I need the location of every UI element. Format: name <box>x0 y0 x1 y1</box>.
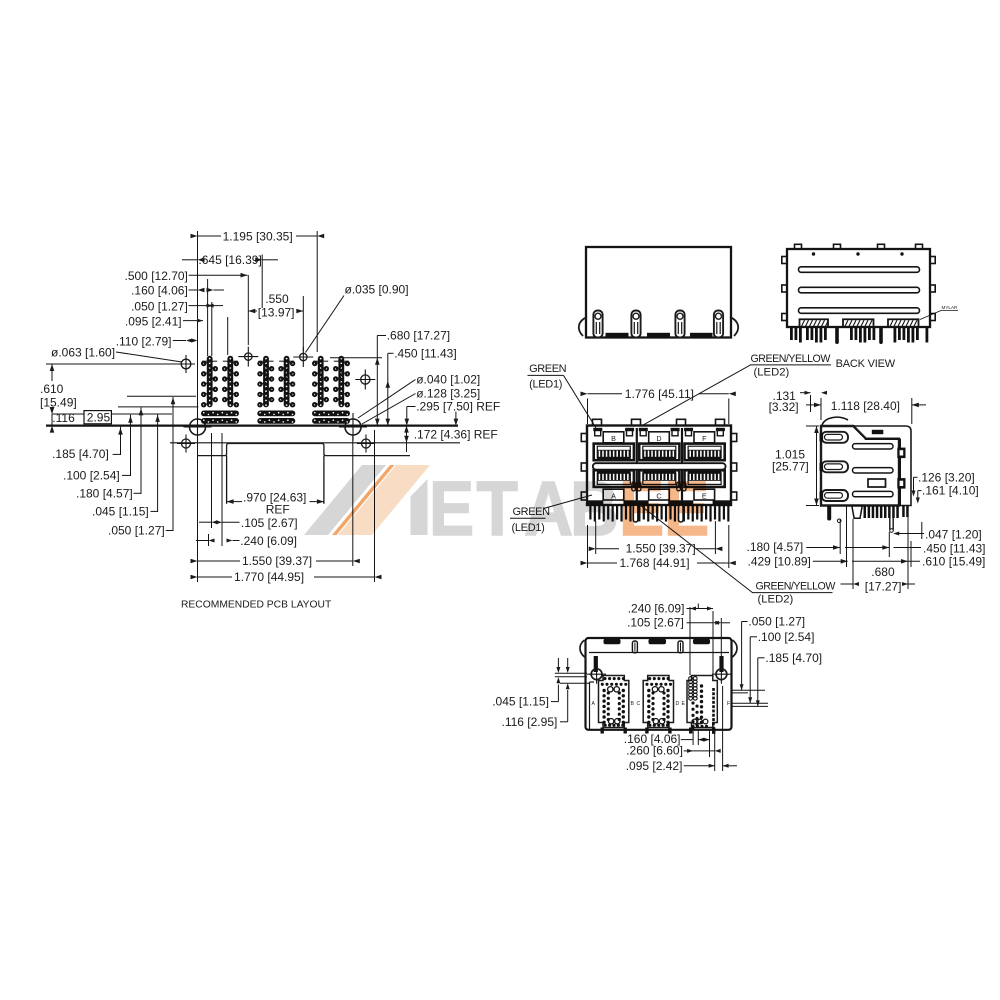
svg-text:.680 [17.27]: .680 [17.27] <box>387 328 450 342</box>
svg-text:.610 [15.49]: .610 [15.49] <box>922 555 985 569</box>
svg-text:E: E <box>429 466 474 552</box>
svg-text:[13.97]: [13.97] <box>258 305 295 319</box>
svg-text:.047 [1.20]: .047 [1.20] <box>925 527 982 541</box>
svg-text:MYLAR: MYLAR <box>942 305 959 310</box>
svg-text:.680: .680 <box>871 565 895 579</box>
svg-text:BACK VIEW: BACK VIEW <box>836 358 896 370</box>
svg-text:F: F <box>702 434 707 443</box>
svg-text:1.770 [44.95]: 1.770 [44.95] <box>234 570 304 584</box>
svg-text:D: D <box>676 701 680 707</box>
svg-text:1.195 [30.35]: 1.195 [30.35] <box>223 230 293 244</box>
svg-text:.500 [12.70]: .500 [12.70] <box>125 269 188 283</box>
svg-text:E: E <box>682 701 686 707</box>
svg-text:1.776 [45.11]: 1.776 [45.11] <box>625 387 694 401</box>
svg-text:.161 [4.10]: .161 [4.10] <box>922 484 979 498</box>
svg-text:.110 [2.79]: .110 [2.79] <box>116 335 172 349</box>
svg-text:.160 [4.06]: .160 [4.06] <box>131 284 188 298</box>
svg-text:.240 [6.09]: .240 [6.09] <box>628 601 685 615</box>
svg-text:GREEN/YELLOW: GREEN/YELLOW <box>756 580 836 592</box>
svg-text:ø.063 [1.60]: ø.063 [1.60] <box>51 346 115 360</box>
svg-text:[15.49]: [15.49] <box>40 395 77 409</box>
svg-text:.050 [1.27]: .050 [1.27] <box>131 300 188 314</box>
svg-text:GREEN/YELLOW: GREEN/YELLOW <box>751 353 831 365</box>
svg-text:.645 [16.39]: .645 [16.39] <box>198 253 261 267</box>
svg-text:.105 [2.67]: .105 [2.67] <box>241 516 298 530</box>
svg-text:E: E <box>664 466 709 552</box>
svg-text:1.768 [44.91]: 1.768 [44.91] <box>620 556 690 570</box>
svg-text:.260 [6.60]: .260 [6.60] <box>626 744 683 758</box>
svg-text:[3.32]: [3.32] <box>769 400 799 414</box>
svg-text:.105 [2.67]: .105 [2.67] <box>627 616 684 630</box>
svg-text:.450 [11.43]: .450 [11.43] <box>923 541 986 555</box>
svg-text:.050 [1.27]: .050 [1.27] <box>748 614 805 628</box>
svg-text:.180 [4.57]: .180 [4.57] <box>76 486 133 500</box>
svg-text:.429 [10.89]: .429 [10.89] <box>748 554 811 568</box>
svg-text:C: C <box>637 701 641 707</box>
svg-text:.050 [1.27]: .050 [1.27] <box>108 524 165 538</box>
svg-text:.550: .550 <box>265 292 289 306</box>
svg-text:.045 [1.15]: .045 [1.15] <box>492 695 549 709</box>
svg-text:D: D <box>656 434 661 443</box>
svg-text:[17.27]: [17.27] <box>865 580 902 594</box>
svg-text:T: T <box>477 466 518 552</box>
svg-text:(LED2): (LED2) <box>754 367 790 379</box>
svg-text:.185 [4.70]: .185 [4.70] <box>765 651 822 665</box>
svg-text:.295 [7.50] REF: .295 [7.50] REF <box>416 400 500 414</box>
svg-text:.126 [3.20]: .126 [3.20] <box>918 470 975 484</box>
svg-text:.172 [4.36] REF: .172 [4.36] REF <box>414 428 498 442</box>
svg-text:B: B <box>631 701 635 707</box>
svg-text:.045 [1.15]: .045 [1.15] <box>92 504 149 518</box>
svg-text:B: B <box>570 466 619 552</box>
svg-text:.116: .116 <box>52 411 75 425</box>
svg-text:(LED2): (LED2) <box>758 594 794 606</box>
svg-text:F: F <box>727 701 730 707</box>
svg-text:1.118 [28.40]: 1.118 [28.40] <box>831 399 900 413</box>
svg-text:.100 [2.54]: .100 [2.54] <box>758 630 815 644</box>
svg-text:ø.035 [0.90]: ø.035 [0.90] <box>345 282 409 296</box>
svg-text:2.95: 2.95 <box>87 410 111 424</box>
svg-text:B: B <box>611 434 616 443</box>
svg-text:ø.128 [3.25]: ø.128 [3.25] <box>416 386 480 400</box>
svg-text:E: E <box>619 466 664 552</box>
svg-text:A: A <box>592 701 596 707</box>
svg-text:ø.040 [1.02]: ø.040 [1.02] <box>416 372 480 386</box>
svg-text:[25.77]: [25.77] <box>772 460 809 474</box>
svg-text:.185 [4.70]: .185 [4.70] <box>52 447 109 461</box>
svg-text:.095 [2.41]: .095 [2.41] <box>125 314 182 328</box>
svg-text:.095 [2.42]: .095 [2.42] <box>626 759 683 773</box>
svg-text:.610: .610 <box>40 382 64 396</box>
svg-text:(LED1): (LED1) <box>529 379 562 391</box>
svg-text:.450 [11.43]: .450 [11.43] <box>394 346 457 360</box>
svg-text:.116 [2.95]: .116 [2.95] <box>502 715 558 729</box>
svg-text:GREEN: GREEN <box>529 363 567 375</box>
svg-text:.100 [2.54]: .100 [2.54] <box>63 468 120 482</box>
svg-text:1.550 [39.37]: 1.550 [39.37] <box>242 554 312 568</box>
svg-text:.240 [6.09]: .240 [6.09] <box>240 534 297 548</box>
svg-text:RECOMMENDED PCB LAYOUT: RECOMMENDED PCB LAYOUT <box>181 600 332 611</box>
svg-text:REF: REF <box>266 503 290 517</box>
svg-text:.180 [4.57]: .180 [4.57] <box>747 540 804 554</box>
svg-text:A: A <box>524 466 573 552</box>
